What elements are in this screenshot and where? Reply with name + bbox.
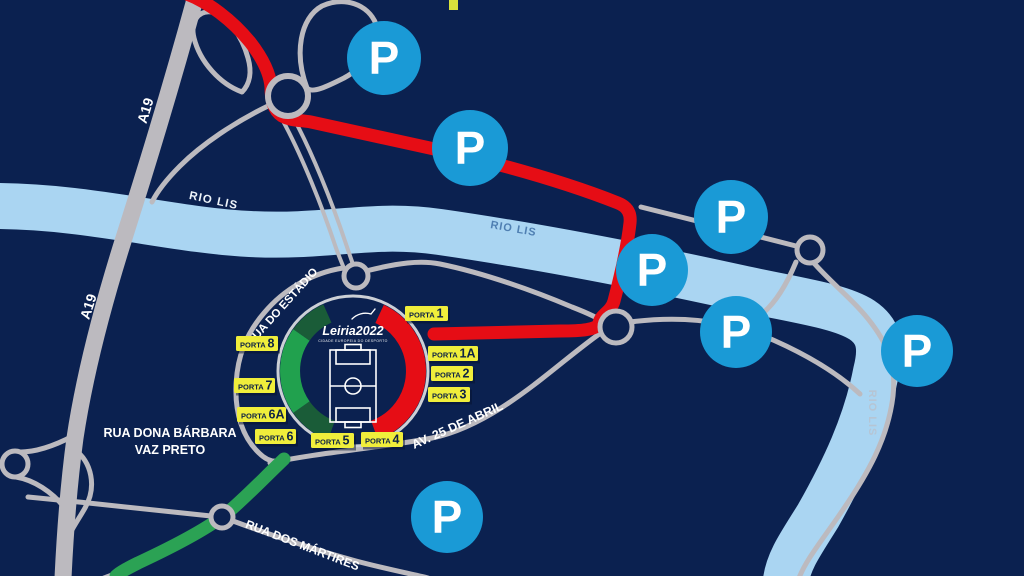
ring-green-segment	[290, 335, 301, 407]
parking-p-letter: P	[721, 306, 752, 358]
parking-p-letter: P	[369, 32, 400, 84]
parking-p-letter: P	[716, 191, 747, 243]
parking-marker[interactable]: P	[347, 21, 421, 95]
gate-label-porta-5: PORTA 5	[311, 433, 356, 451]
stadium-logo-subtitle: CIDADE EUROPEIA DO DESPORTO	[318, 339, 388, 343]
label-rio-lis-east: RIO LIS	[866, 390, 878, 437]
roundabout-river	[797, 237, 823, 263]
map-background	[0, 0, 1024, 576]
stadium-logo: Leiria2022	[322, 324, 383, 338]
label-barbara-line2: VAZ PRETO	[135, 443, 206, 457]
parking-marker[interactable]: P	[616, 234, 688, 306]
gate-label-porta-3: PORTA 3	[428, 387, 472, 405]
parking-p-letter: P	[637, 244, 668, 296]
gate-label-porta-1: PORTA 1	[405, 306, 450, 324]
stadium-access-map: Leiria2022 CIDADE EUROPEIA DO DESPORTO A…	[0, 0, 1024, 576]
parking-marker[interactable]: P	[432, 110, 508, 186]
parking-p-letter: P	[455, 122, 486, 174]
parking-p-letter: P	[902, 325, 933, 377]
parking-marker[interactable]: P	[411, 481, 483, 553]
parking-marker[interactable]: P	[881, 315, 953, 387]
parking-p-letter: P	[432, 491, 463, 543]
map-canvas: Leiria2022 CIDADE EUROPEIA DO DESPORTO A…	[0, 0, 1024, 576]
roundabout-southwest	[2, 451, 28, 477]
gate-label-porta-1a: PORTA 1A	[428, 346, 480, 364]
gate-label-porta-6: PORTA 6	[255, 429, 298, 447]
gate-label-porta-8: PORTA 8	[236, 336, 280, 354]
roundabout-martires	[211, 506, 233, 528]
parking-marker[interactable]: P	[700, 296, 772, 368]
gate-label-porta-6a: PORTA 6A	[237, 407, 288, 425]
roundabout-stadium-top	[344, 264, 368, 288]
roundabout-north	[268, 76, 308, 116]
gate-label-porta-7: PORTA 7	[234, 378, 277, 396]
cutoff-label-top	[449, 0, 458, 10]
label-barbara-line1: RUA DONA BÁRBARA	[103, 425, 236, 440]
roundabout-east	[600, 311, 632, 343]
gate-label-porta-2: PORTA 2	[431, 366, 475, 384]
gate-label-porta-4: PORTA 4	[361, 432, 405, 450]
parking-marker[interactable]: P	[694, 180, 768, 254]
